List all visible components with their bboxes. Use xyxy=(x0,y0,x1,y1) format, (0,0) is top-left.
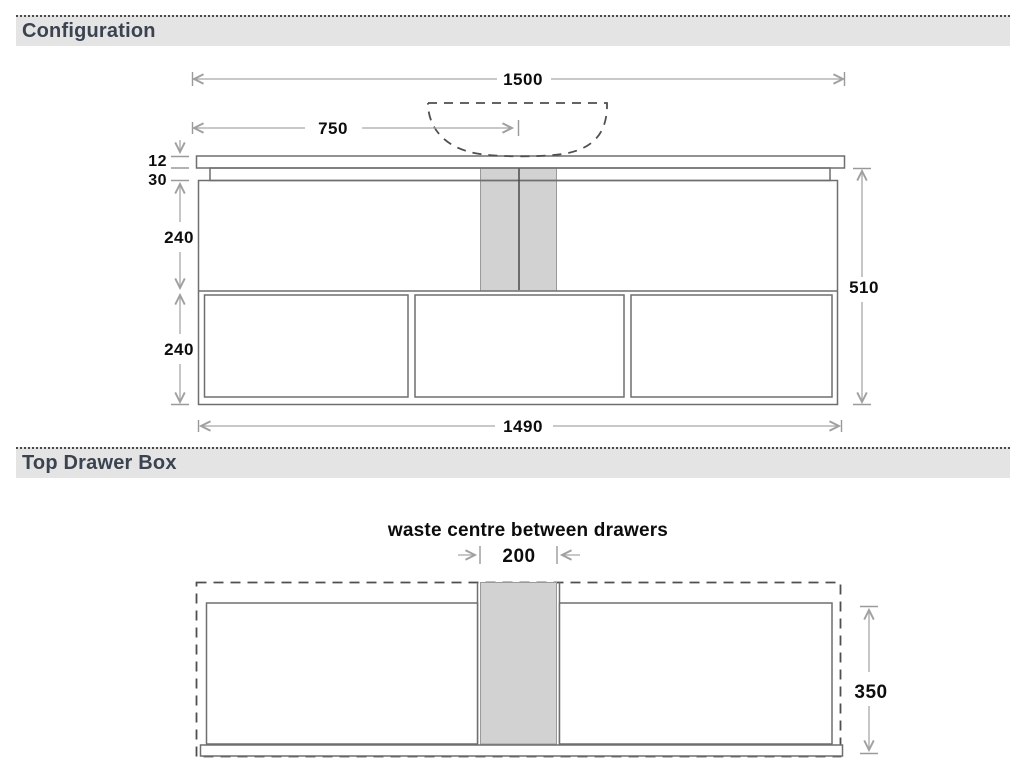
waste-centre-caption: waste centre between drawers xyxy=(387,520,668,541)
top-drawer-box-left xyxy=(207,603,478,744)
dim-label-1490: 1490 xyxy=(503,417,543,436)
benchtop xyxy=(197,156,845,168)
bottom-drawer-left xyxy=(205,295,409,397)
dim-label-510: 510 xyxy=(849,278,879,297)
bottom-drawer-middle xyxy=(415,295,624,397)
waste-zone-shading-bottom xyxy=(481,583,557,745)
spec-sheet: 1500 750 12 30 240 240 xyxy=(0,0,1024,773)
dim-drawer-depth: 350 xyxy=(854,607,887,754)
dim-label-240-bottom: 240 xyxy=(164,340,194,359)
dim-overall-width: 1500 xyxy=(193,70,845,89)
dim-cabinet-width: 1490 xyxy=(199,417,842,436)
dim-label-240-top: 240 xyxy=(164,228,194,247)
top-drawer-box-diagram: waste centre between drawers 200 xyxy=(197,520,888,757)
dim-label-1500: 1500 xyxy=(503,70,543,89)
dim-label-200: 200 xyxy=(502,546,535,567)
configuration-diagram: 1500 750 12 30 240 240 xyxy=(148,70,879,436)
drawer-box-base xyxy=(201,745,843,756)
dim-label-350: 350 xyxy=(854,682,887,703)
section-title-configuration: Configuration xyxy=(16,20,156,43)
top-drawer-box-right xyxy=(560,603,833,744)
dim-basin-centre: 750 xyxy=(193,119,519,138)
dim-left-stack: 12 30 240 240 xyxy=(148,140,194,405)
section-header-configuration: Configuration xyxy=(16,15,1010,46)
section-header-top-drawer-box: Top Drawer Box xyxy=(16,447,1010,478)
dim-label-30: 30 xyxy=(148,172,167,189)
dim-waste-centre: 200 xyxy=(458,546,580,567)
dim-label-12: 12 xyxy=(148,153,167,170)
basin-dashed-outline xyxy=(428,103,607,156)
dim-label-750: 750 xyxy=(318,119,348,138)
section-title-top-drawer-box: Top Drawer Box xyxy=(16,452,177,475)
bottom-drawer-right xyxy=(631,295,832,397)
dim-total-height: 510 xyxy=(849,169,879,405)
diagram-canvas: 1500 750 12 30 240 240 xyxy=(0,0,1024,773)
